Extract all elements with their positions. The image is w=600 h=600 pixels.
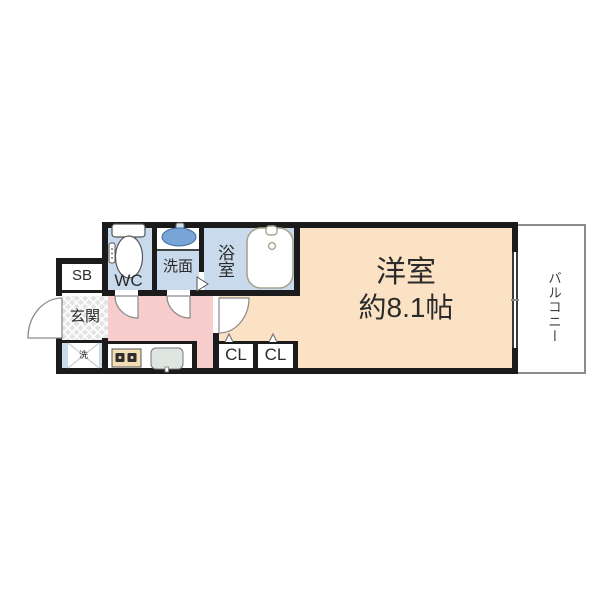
bath-door-icon (197, 277, 208, 291)
toilet-label: WC (105, 272, 152, 291)
stove-burner-dot (119, 356, 122, 359)
closet-1-door-icon (225, 334, 233, 342)
main-room-label: 洋室 (300, 256, 512, 289)
balcony-label: バルコニー (537, 242, 563, 372)
laundry-label: 洗 (62, 351, 105, 361)
toilet-door-arc (115, 296, 138, 318)
main-room-size-label: 約8.1帖 (300, 293, 512, 324)
kitchen-sink-icon (151, 348, 183, 369)
bathtub-drain-icon (269, 243, 276, 250)
bath-label: 浴室 (215, 233, 237, 289)
toilet-tank-icon (112, 224, 145, 237)
toilet-control-dot (111, 253, 113, 255)
washbasin-icon (162, 228, 196, 246)
closet-2-door-icon (269, 334, 277, 342)
washroom-label: 洗面 (157, 259, 199, 276)
toilet-control-dot (111, 257, 113, 259)
toilet-control-dot (111, 248, 113, 250)
bathtub-icon (247, 228, 293, 288)
washroom-door-arc (167, 296, 190, 318)
floor-plan: SB WC 洗面 浴室 玄関 洗 CL CL 洋室 約8.1帖 バルコニー (0, 0, 600, 600)
entrance-door-arc (28, 298, 62, 338)
shoe-box-label: SB (62, 268, 102, 285)
kitchen-faucet-icon (165, 367, 169, 372)
entrance-label: 玄関 (62, 309, 108, 326)
closet-1-label: CL (219, 346, 253, 365)
main-room-door-arc (219, 298, 249, 333)
bathtub-faucet-icon (266, 226, 277, 235)
stove-burner-dot (131, 356, 134, 359)
closet-2-label: CL (258, 346, 293, 365)
